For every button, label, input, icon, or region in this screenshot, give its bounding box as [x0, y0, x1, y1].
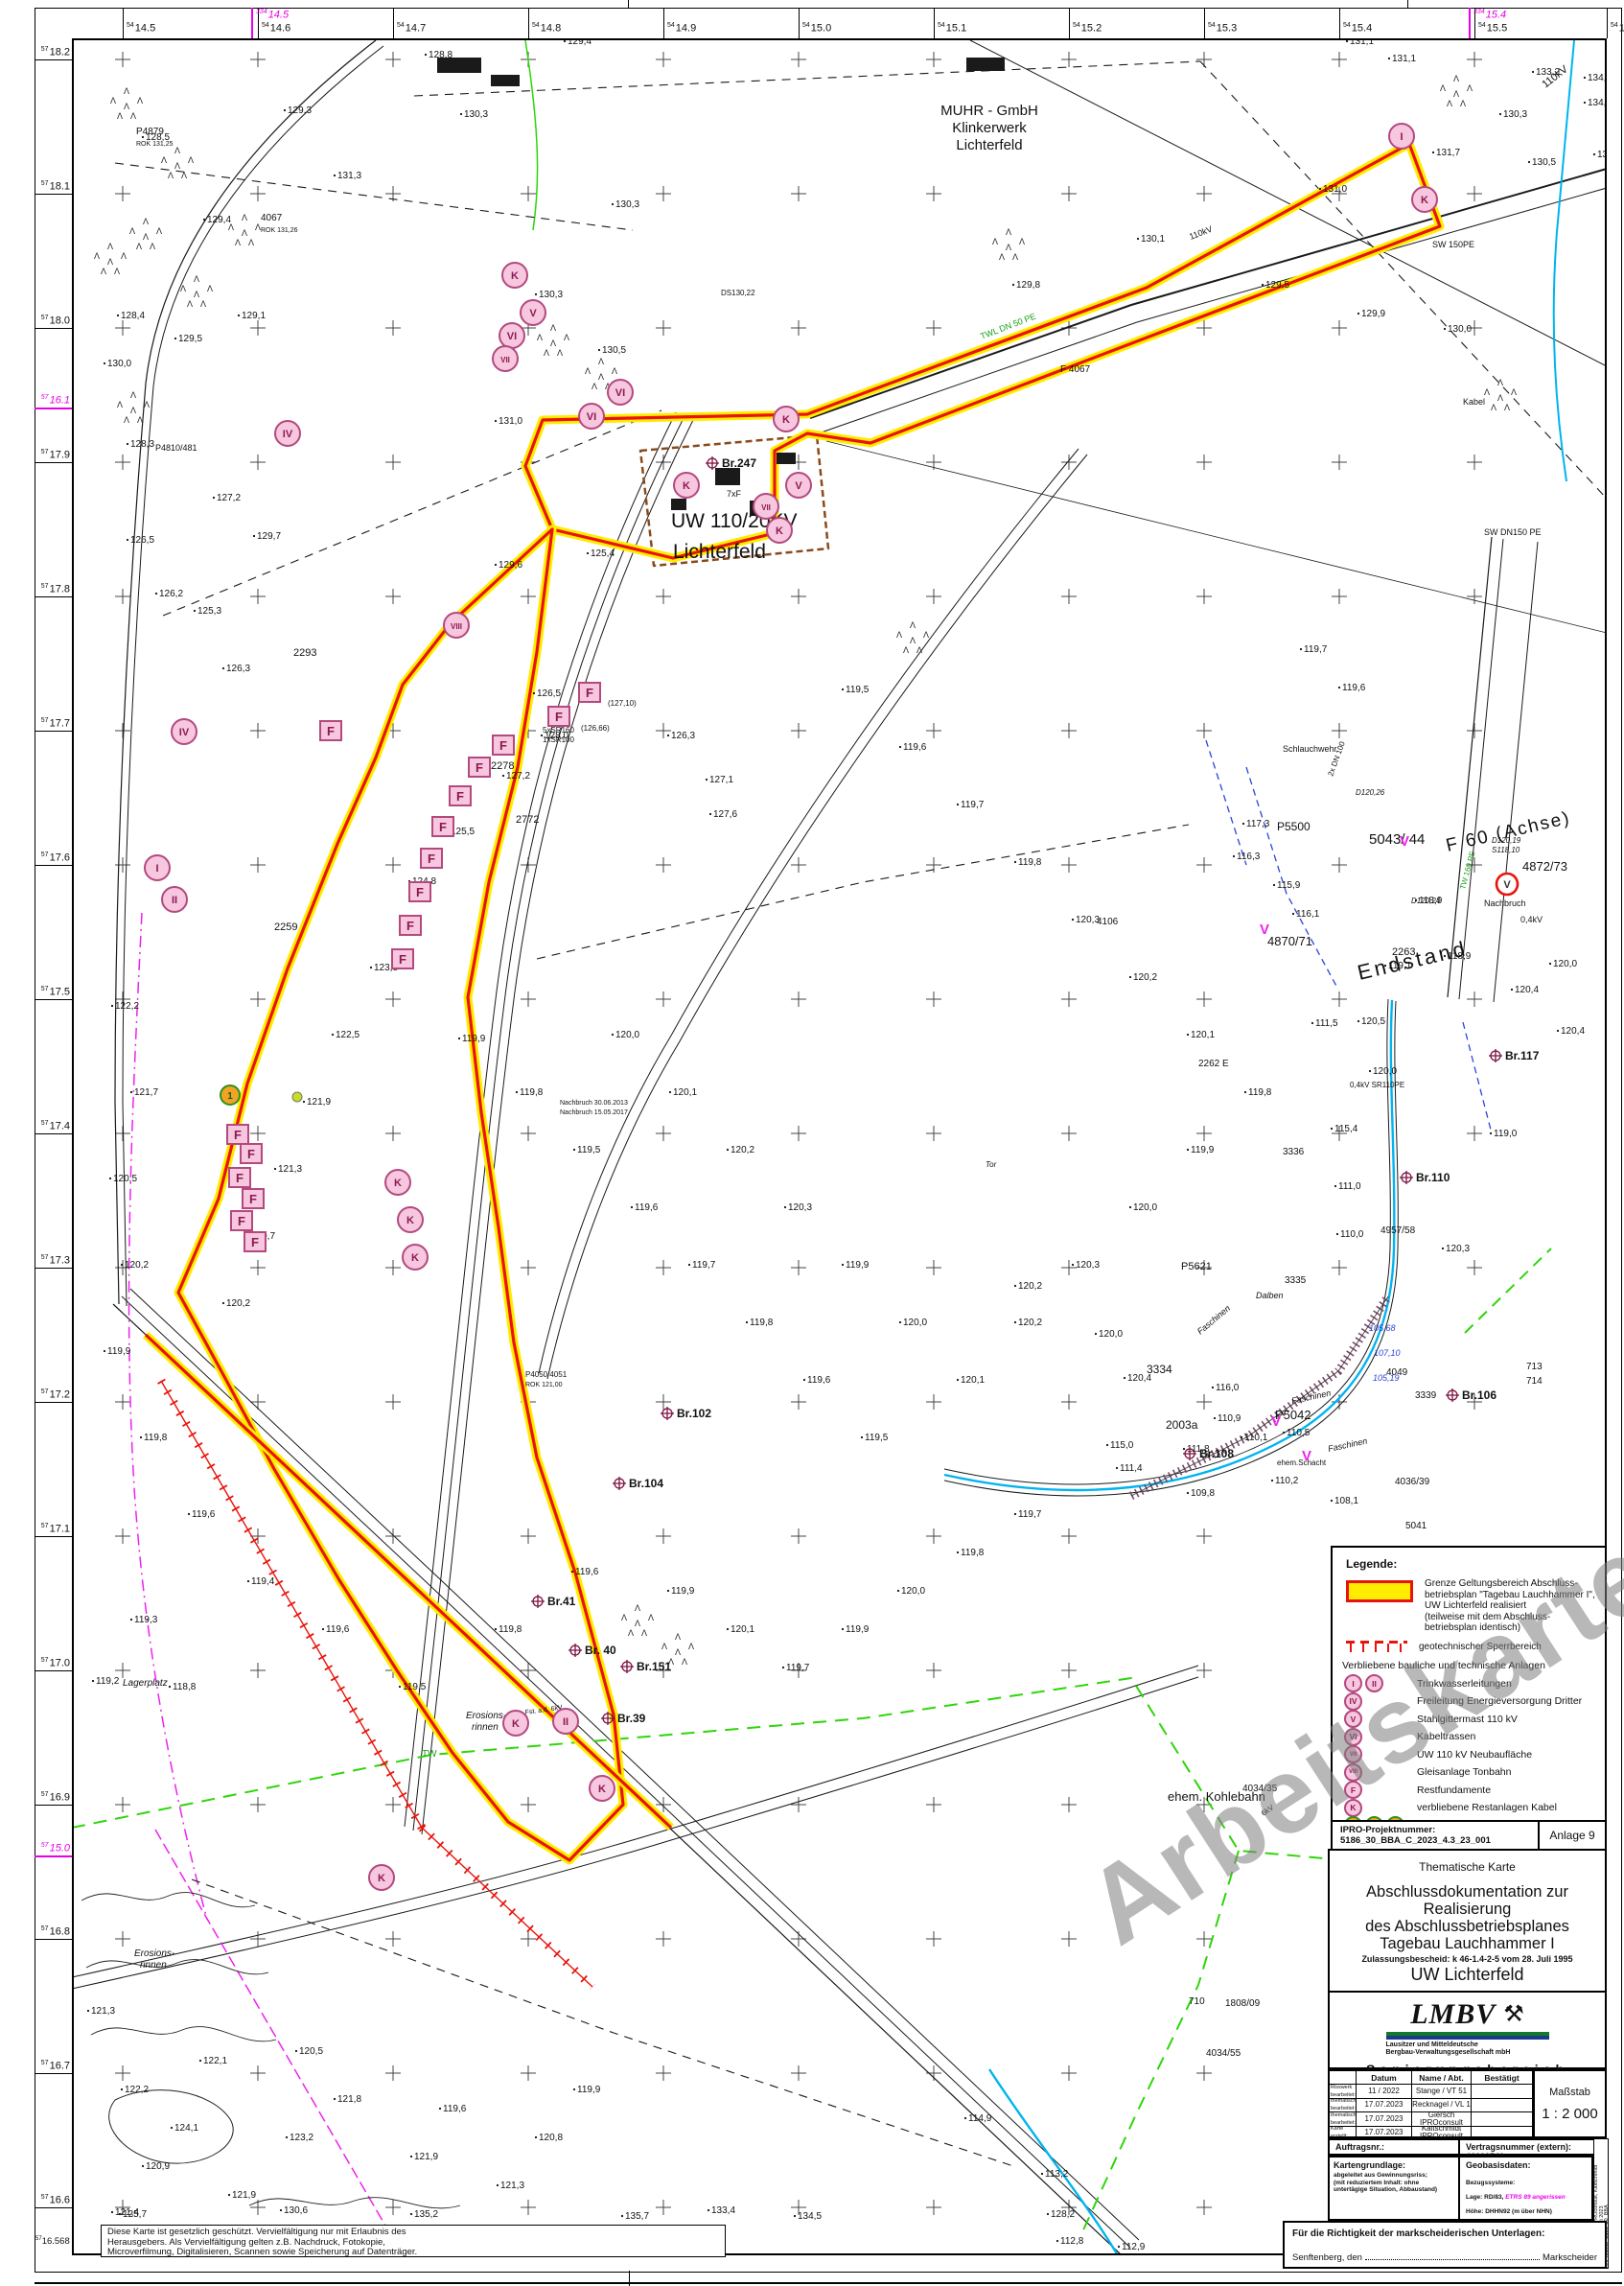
- geobasis-cell: Geobasisdaten: Bezugssysteme: Lage: RD/8…: [1460, 2158, 1591, 2219]
- grid-tick: [35, 731, 72, 732]
- grid-tick-etrs: [251, 8, 253, 38]
- grid-label-top: 5415.5: [1478, 22, 1507, 35]
- grid-tick: [123, 8, 124, 38]
- grid-label-left: 5716.7: [41, 2060, 70, 2072]
- copyright-note: Diese Karte ist gesetzlich geschützt. Ve…: [101, 2225, 726, 2257]
- grid-label-top: 5415.4: [1343, 22, 1372, 35]
- title-line-1: Abschlussdokumentation zur Realisierung: [1330, 1883, 1605, 1918]
- grid-label-left: 5718.2: [41, 46, 70, 58]
- grid-label-left: 5717.4: [41, 1120, 70, 1132]
- table-cell: 17.07.2023: [1357, 2112, 1412, 2126]
- order-number-label: Auftragsnr.:: [1330, 2140, 1460, 2154]
- grid-tick: [35, 1670, 72, 1671]
- legend-row: FRestfundamente: [1342, 1782, 1595, 1800]
- legend-row-label: Gleisanlage Tonbahn: [1417, 1766, 1511, 1778]
- scale-cell: Maßstab 1 : 2 000: [1535, 2071, 1605, 2136]
- grid-label-left: 5716.6: [41, 2194, 70, 2206]
- legend-row-symbols: V: [1344, 1710, 1411, 1728]
- table-cell: Recknagel / VL 1: [1412, 2099, 1472, 2112]
- surveyor-label: Markscheider: [1543, 2252, 1597, 2263]
- grid-tick: [35, 1133, 72, 1134]
- grid-label-left: 5718.0: [41, 315, 70, 327]
- table-cell: thematisch bearbeitet:: [1330, 2112, 1357, 2126]
- sperr-swatch: [1346, 1641, 1407, 1654]
- grid-tick: [35, 1402, 72, 1403]
- grid-tick: [1339, 8, 1340, 38]
- grid-tick: [35, 865, 72, 866]
- grid-label-top: 5415.0: [802, 22, 831, 35]
- grid-label-top: 5414.9: [667, 22, 696, 35]
- scale-value: 1 : 2 000: [1542, 2106, 1597, 2122]
- grid-tick: [35, 2073, 72, 2074]
- legend-box: Legende: Grenze Geltungsbereich Abschlus…: [1331, 1546, 1607, 1822]
- grid-tick: [35, 1939, 72, 1940]
- etrs-note: ETRS 89 angerissen: [1505, 2194, 1566, 2201]
- grid-label-left: 5718.1: [41, 180, 70, 193]
- legend-row-label: UW 110 kV Neubaufläche: [1417, 1749, 1532, 1761]
- permit-line: Zulassungsbescheid: k 46-1.4-2-5 vom 28.…: [1330, 1954, 1605, 1964]
- legend-row-label: Trinkwasserleitungen: [1417, 1678, 1512, 1690]
- grid-tick: [35, 462, 72, 463]
- legend-row-symbols: K: [1344, 1799, 1411, 1817]
- grid-label-top: 5415.1: [938, 22, 966, 35]
- table-header-cell: [1330, 2071, 1357, 2085]
- grid-tick: [393, 8, 394, 38]
- grid-tick-etrs: [35, 1855, 72, 1857]
- surveyor-statement: Für die Richtigkeit der markscheiderisch…: [1292, 2228, 1597, 2239]
- table-header-cell: Name / Abt.: [1412, 2071, 1472, 2085]
- grid-label-top: 5415.598: [1611, 22, 1624, 35]
- legend-row-symbols: VIII: [1344, 1763, 1411, 1782]
- grid-tick: [35, 59, 72, 60]
- signature-line: [1365, 2259, 1540, 2260]
- basis-box: Kartengrundlage: abgeleitet aus Gewinnun…: [1328, 2156, 1593, 2221]
- title-box: Thematische Karte Abschlussdokumentation…: [1328, 1849, 1607, 1993]
- grid-tick: [35, 1536, 72, 1537]
- grid-label-top: 5414.8: [532, 22, 561, 35]
- table-cell: 17.07.2023: [1357, 2099, 1412, 2112]
- legend-row: VIIIGleisanlage Tonbahn: [1342, 1763, 1595, 1782]
- legend-row-symbols: VI: [1344, 1728, 1411, 1746]
- boundary-label: Grenze Geltungsbereich Abschluss- betrie…: [1425, 1578, 1595, 1634]
- order-row: Auftragsnr.: Vertragsnummer (extern): 46…: [1328, 2138, 1607, 2156]
- revision-table-box: DatumName / Abt.BestätigtRisswerk bearbe…: [1328, 2069, 1607, 2138]
- boundary-swatch: [1346, 1580, 1413, 1602]
- table-cell: Risswerk bearbeitet:: [1330, 2085, 1357, 2098]
- legend-row: IIITrinkwasserleitungen: [1342, 1675, 1595, 1693]
- facility-legend-symbol: IV: [1344, 1692, 1362, 1711]
- grid-tick: [35, 328, 72, 329]
- ipro-row: IPRO-Projektnummer: 5186_30_BBA_C_2023_4…: [1331, 1820, 1607, 1851]
- facility-legend-symbol: V: [1344, 1710, 1362, 1728]
- table-cell: [1472, 2085, 1533, 2098]
- grid-tick-etrs: [35, 408, 72, 409]
- hammer-pick-icon: ⚒: [1503, 2003, 1524, 2026]
- table-cell: [1472, 2112, 1533, 2126]
- company-name-line-2: Bergbau-Verwaltungsgesellschaft mbH: [1386, 2049, 1549, 2057]
- geobasis-heading: Geobasisdaten:: [1466, 2160, 1586, 2170]
- grid-label-left-etrs: 5715.0: [41, 1842, 70, 1854]
- map-kind: Thematische Karte: [1330, 1860, 1605, 1874]
- grid-tick: [663, 8, 664, 38]
- grid-tick: [1607, 8, 1608, 38]
- legend-row: IVFreileitung Energieversorgung Dritter: [1342, 1692, 1595, 1711]
- grid-label-left: 5716.9: [41, 1791, 70, 1804]
- lmbv-logo: LMBV: [1410, 1998, 1496, 2031]
- legend-row: VStahlgittermast 110 kV: [1342, 1711, 1595, 1729]
- grid-band-top: 5414.55414.65414.75414.85414.95415.05415…: [0, 8, 1624, 38]
- grid-tick: [528, 8, 529, 38]
- logo-stripes: [1386, 2032, 1549, 2040]
- grid-band-left: 5718.25718.15718.05717.95717.85717.75717…: [35, 8, 72, 2271]
- grid-tick: [799, 8, 800, 38]
- company-name-line-1: Lausitzer und Mitteldeutsche: [1386, 2041, 1549, 2049]
- facility-legend-symbol: I: [1344, 1674, 1362, 1692]
- table-cell: thematisch bearbeitet:: [1330, 2099, 1357, 2112]
- grid-tick: [1069, 8, 1070, 38]
- grid-label-top-etrs: 33415.4: [1473, 9, 1506, 21]
- facility-legend-symbol: VIII: [1344, 1763, 1362, 1782]
- map-basis-text: abgeleitet aus Gewinnungsriss; (mit redu…: [1334, 2172, 1454, 2194]
- grid-tick: [35, 1268, 72, 1269]
- ipro-number: IPRO-Projektnummer: 5186_30_BBA_C_2023_4…: [1333, 1822, 1540, 1849]
- site-name: UW Lichterfeld: [1330, 1965, 1605, 1985]
- map-basis-heading: Kartengrundlage:: [1334, 2160, 1454, 2170]
- grid-label-top: 5414.7: [397, 22, 426, 35]
- grid-label-left: 5717.9: [41, 449, 70, 461]
- map-basis-cell: Kartengrundlage: abgeleitet aus Gewinnun…: [1330, 2158, 1460, 2219]
- legend-row: VIIUW 110 kV Neubaufläche: [1342, 1746, 1595, 1764]
- legend-row-symbols: F: [1344, 1781, 1411, 1799]
- grid-label-left: 5717.1: [41, 1523, 70, 1535]
- grid-label-left: 5717.2: [41, 1388, 70, 1401]
- legend-row: VIKabeltrassen: [1342, 1728, 1595, 1746]
- grid-label-left: 5717.5: [41, 986, 70, 998]
- title-line-2: des Abschlussbetriebsplanes: [1330, 1918, 1605, 1935]
- table-cell: Stange / VT 51: [1412, 2085, 1472, 2098]
- grid-tick: [1204, 8, 1205, 38]
- legend-row-symbols: VII: [1344, 1745, 1411, 1763]
- legend-sperr-entry: geotechnischer Sperrbereich: [1346, 1641, 1595, 1654]
- facility-legend-symbol: K: [1344, 1799, 1362, 1817]
- facility-legend-symbol: VII: [1344, 1745, 1362, 1763]
- grid-tick-etrs: [1469, 8, 1471, 38]
- legend-row-label: Kabeltrassen: [1417, 1731, 1475, 1742]
- grid-label-top: 5415.2: [1073, 22, 1102, 35]
- anlage-number: Anlage 9: [1540, 1822, 1605, 1849]
- grid-tick: [35, 194, 72, 195]
- fold-mark: [629, 2271, 630, 2286]
- title-line-3: Tagebau Lauchhammer I: [1330, 1935, 1605, 1952]
- contract-number: Vertragsnummer (extern): 46000540: [1460, 2140, 1605, 2154]
- facility-legend-symbol: F: [1344, 1781, 1362, 1799]
- table-cell: [1472, 2099, 1533, 2112]
- legend-row-label: Stahlgittermast 110 kV: [1417, 1714, 1518, 1725]
- reference-systems-label: Bezugssysteme:: [1466, 2180, 1515, 2186]
- grid-label-top: 5415.3: [1208, 22, 1237, 35]
- legend-heading: Legende:: [1346, 1557, 1595, 1571]
- signature-city: Senftenberg, den: [1292, 2252, 1362, 2263]
- revision-table: DatumName / Abt.BestätigtRisswerk bearbe…: [1330, 2071, 1535, 2136]
- facility-legend-symbol: VI: [1344, 1728, 1362, 1746]
- grid-tick: [934, 8, 935, 38]
- grid-label-top: 5414.6: [262, 22, 290, 35]
- grid-label-left: 5717.8: [41, 583, 70, 595]
- grid-label-top: 5414.5: [127, 22, 155, 35]
- grid-label-left: 5717.0: [41, 1657, 70, 1669]
- table-cell: 11 / 2022: [1357, 2085, 1412, 2098]
- scale-label: Maßstab: [1549, 2087, 1590, 2098]
- table-cell: Giersch IPROconsult: [1412, 2112, 1472, 2126]
- grid-tick: [35, 999, 72, 1000]
- sheet-bottom-edge: [35, 2282, 1622, 2284]
- legend-row-symbols: III: [1344, 1674, 1411, 1692]
- height-system: Höhe: DHHN92 (m über NHN): [1466, 2208, 1552, 2215]
- grid-tick: [35, 596, 72, 597]
- table-header-cell: Bestätigt: [1472, 2071, 1533, 2085]
- grid-label-left-etrs: 5716.1: [41, 394, 70, 407]
- facility-legend-symbol: II: [1365, 1674, 1383, 1692]
- grid-corner-label: 5716.568: [35, 2236, 72, 2247]
- grid-label-left: 5717.3: [41, 1254, 70, 1267]
- signature-box: Für die Richtigkeit der markscheiderisch…: [1283, 2221, 1607, 2269]
- map-sheet: ΛΛΛΛΛΛΛΛΛΛΛΛΛΛΛΛΛΛΛΛΛΛΛΛΛΛΛΛΛΛΛΛΛΛΛΛΛΛΛΛ…: [0, 0, 1624, 2286]
- table-header-cell: Datum: [1357, 2071, 1412, 2085]
- legend-row-label: Freileitung Energieversorgung Dritter: [1417, 1695, 1582, 1707]
- legend-section-heading: Verbliebene bauliche und technische Anla…: [1342, 1660, 1595, 1671]
- grid-tick: [35, 1805, 72, 1806]
- grid-label-left: 5717.6: [41, 851, 70, 864]
- fold-mark: [1407, 0, 1408, 8]
- legend-row-label: verbliebene Restanlagen Kabel: [1417, 1802, 1557, 1813]
- grid-label-top-etrs: 33414.5: [256, 9, 289, 21]
- legend-row-label: Restfundamente: [1417, 1784, 1491, 1796]
- position-system: Lage: RD/83,: [1466, 2194, 1505, 2201]
- grid-label-left: 5716.8: [41, 1925, 70, 1938]
- legend-row-symbols: IV: [1344, 1692, 1411, 1711]
- sperr-label: geotechnischer Sperrbereich: [1419, 1642, 1542, 1652]
- grid-tick: [35, 2207, 72, 2208]
- grid-label-left: 5717.7: [41, 717, 70, 730]
- company-box: LMBV ⚒ Lausitzer und Mitteldeutsche Berg…: [1328, 1991, 1607, 2069]
- legend-rows: IIITrinkwasserleitungenIVFreileitung Ene…: [1342, 1675, 1595, 1835]
- legend-boundary-entry: Grenze Geltungsbereich Abschluss- betrie…: [1346, 1578, 1595, 1634]
- fold-mark: [628, 0, 629, 8]
- legend-row: Kverbliebene Restanlagen Kabel: [1342, 1799, 1595, 1817]
